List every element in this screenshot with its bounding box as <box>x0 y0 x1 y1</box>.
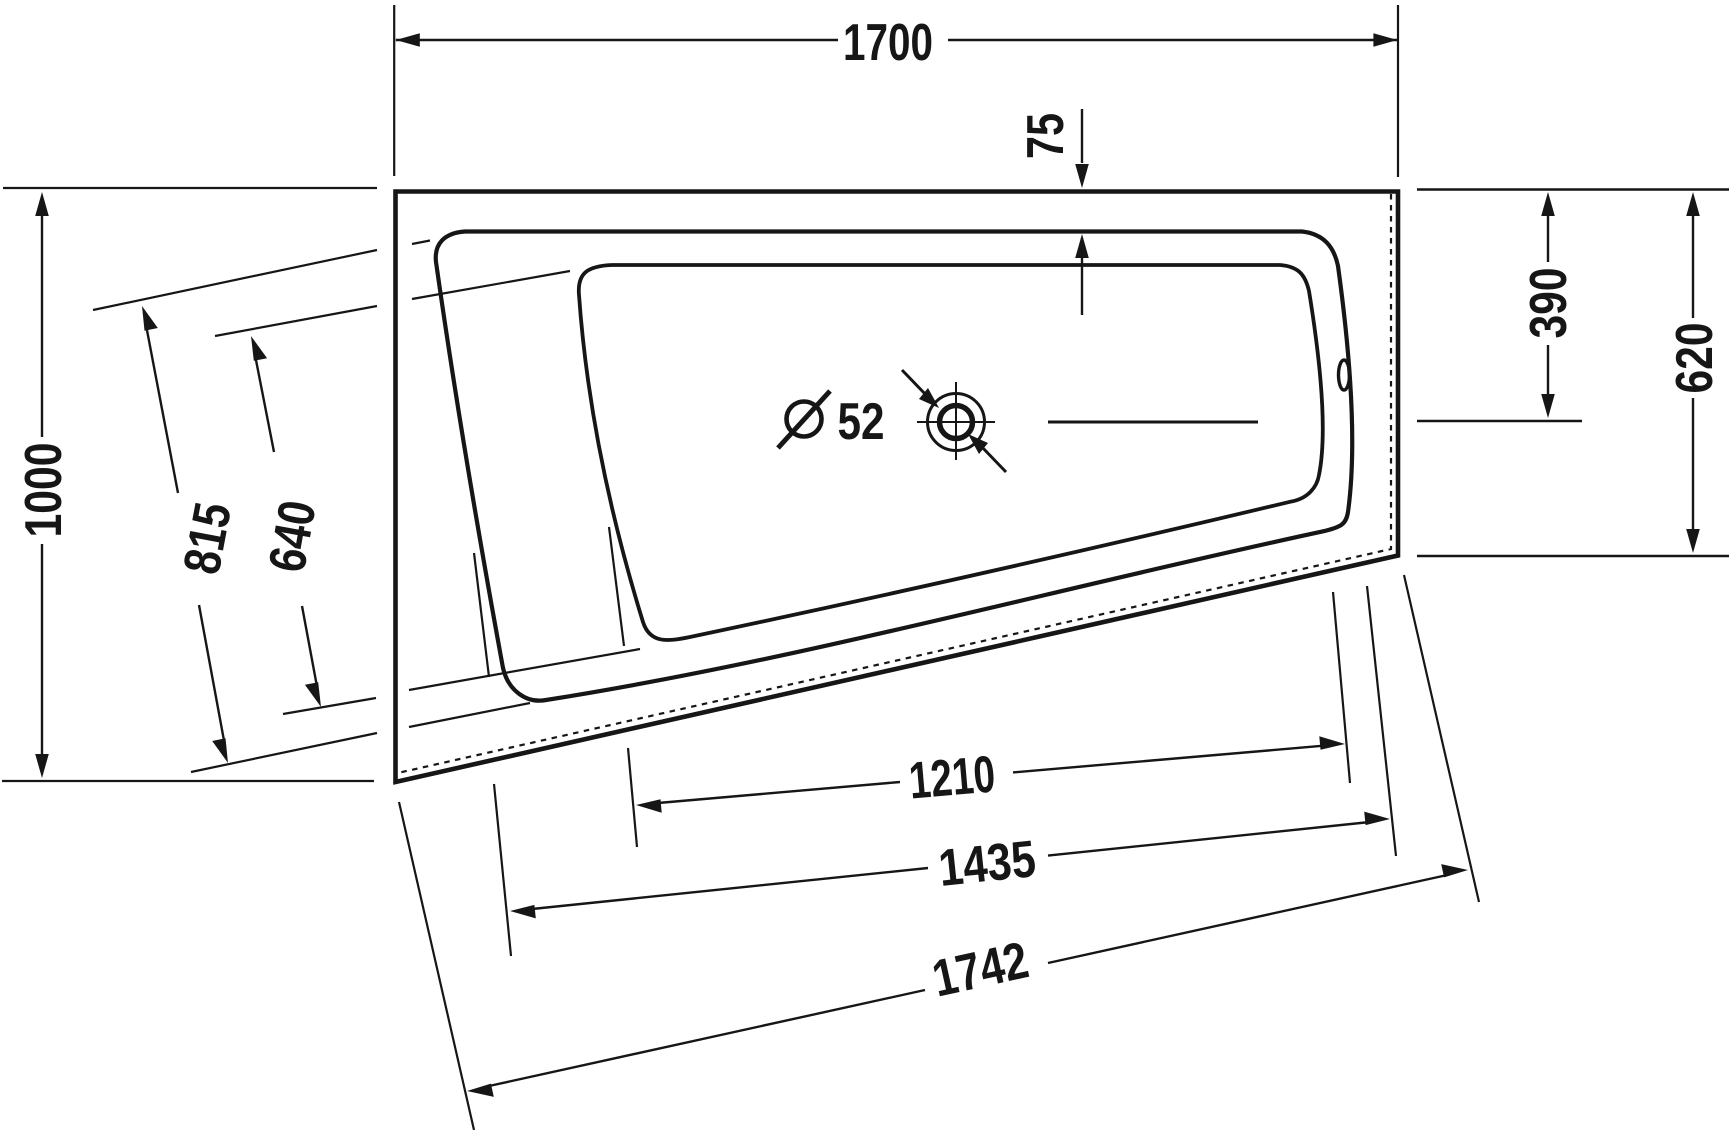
svg-text:390: 390 <box>1520 268 1578 339</box>
svg-text:1700: 1700 <box>843 14 933 72</box>
svg-text:1210: 1210 <box>907 745 998 810</box>
svg-text:640: 640 <box>258 496 327 576</box>
svg-text:1435: 1435 <box>936 830 1039 898</box>
svg-text:1000: 1000 <box>15 443 73 538</box>
svg-text:52: 52 <box>838 393 885 451</box>
svg-text:620: 620 <box>1666 323 1724 394</box>
svg-text:75: 75 <box>1017 113 1075 159</box>
